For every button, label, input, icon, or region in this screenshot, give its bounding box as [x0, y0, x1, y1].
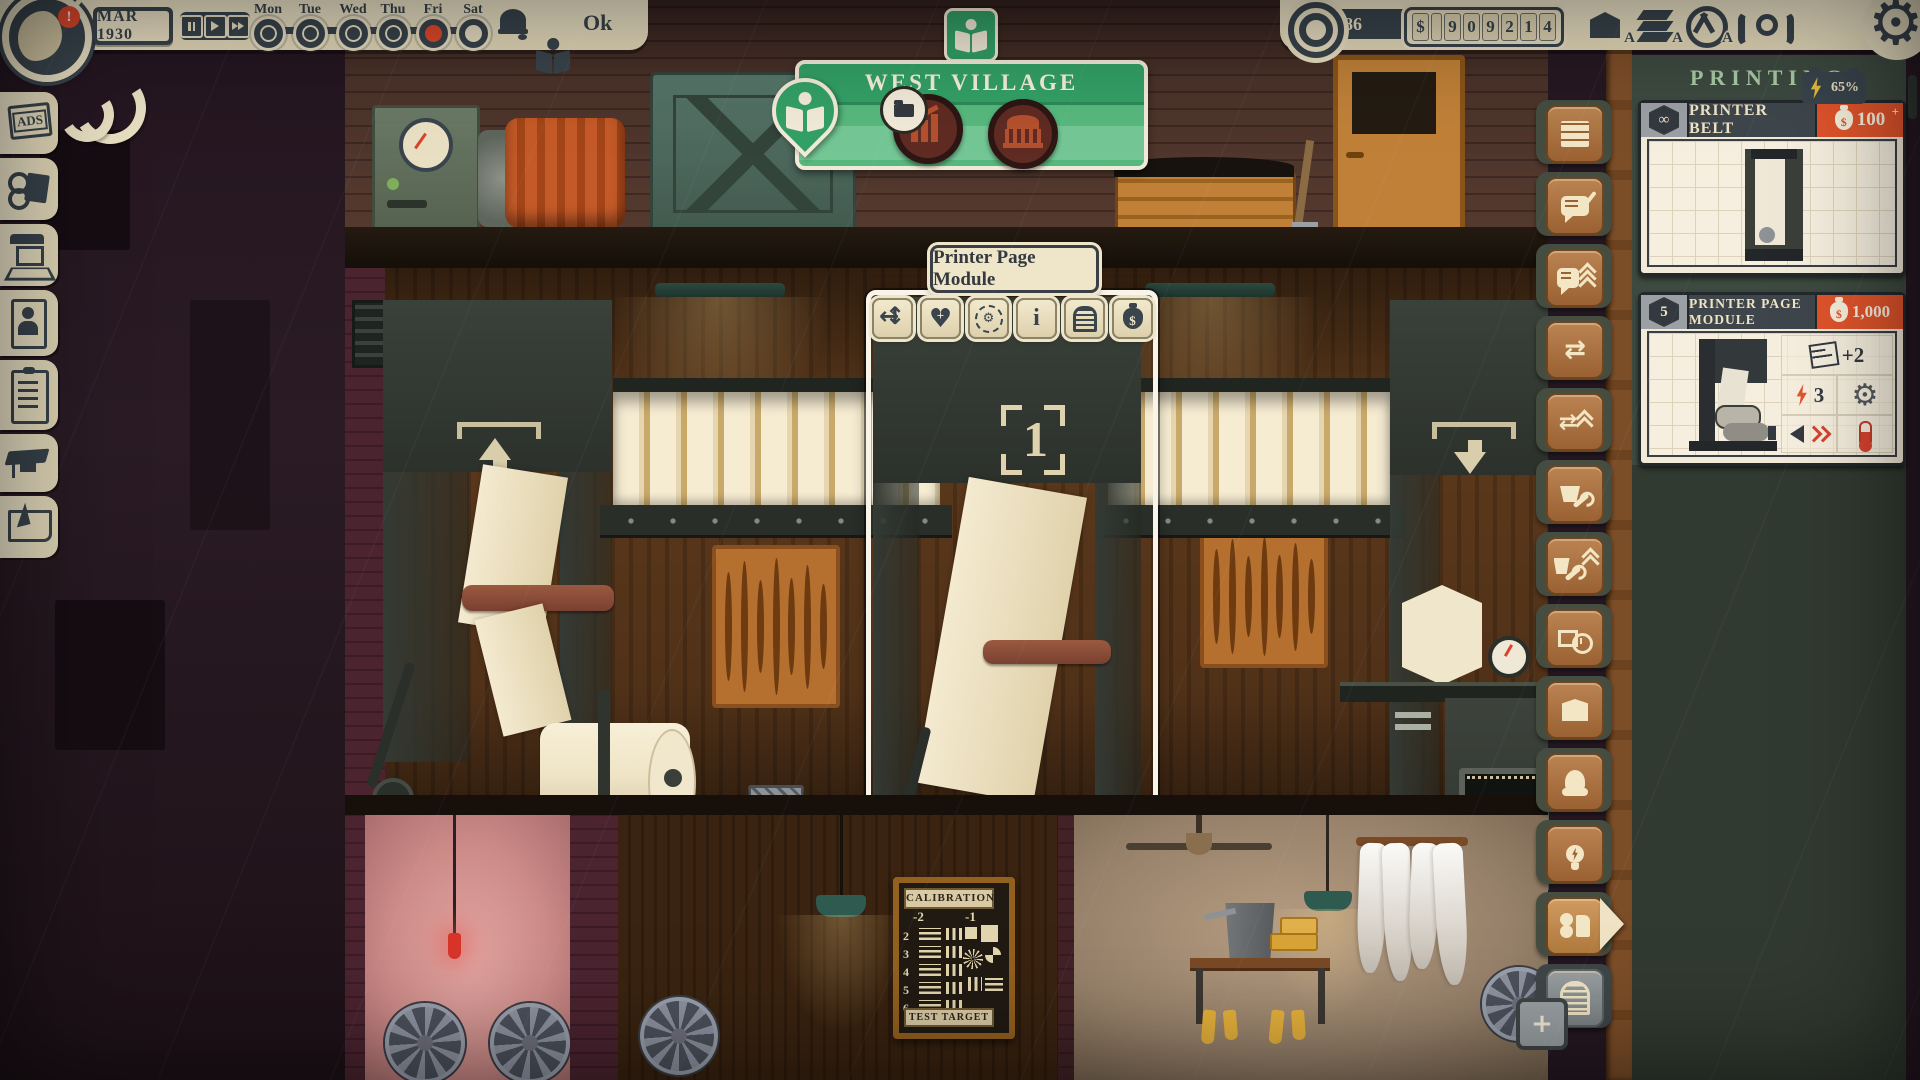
district-marker[interactable] [944, 8, 998, 62]
capitol-dome [1007, 115, 1039, 129]
scrollbar-thumb[interactable] [1908, 75, 1917, 119]
exterior-window [55, 600, 165, 750]
preview-pillar [1699, 339, 1715, 441]
buy-cost[interactable]: $ 100 + [1815, 103, 1903, 137]
rubber-glove [1268, 1009, 1284, 1044]
toolbar-repair-batch-button[interactable] [1536, 532, 1612, 596]
stat-noise [1781, 415, 1837, 453]
stat-maintenance: ⚙ [1837, 375, 1893, 415]
banner-stripe [799, 126, 1144, 160]
toolbar-write-article-button[interactable] [1536, 172, 1612, 236]
toolbar-page-cycle-button[interactable]: ⇄ [1536, 316, 1612, 380]
day-mon: Mon [248, 3, 288, 53]
day-dot [379, 19, 408, 48]
staff-portrait-icon [22, 307, 34, 319]
calibration-col: -2 [913, 909, 924, 925]
storage-door-icon [1073, 306, 1097, 332]
date-text: MAR 1930 [97, 11, 169, 41]
government-coin-badge[interactable] [988, 99, 1058, 169]
module-number: 1 [1023, 409, 1048, 469]
toolbar-staff-button[interactable] [1536, 748, 1612, 812]
cycle-icon: ⇄ [1546, 321, 1604, 379]
card-title: PRINTER BELT [1689, 103, 1815, 137]
module-number-placard: 1 [1001, 405, 1065, 475]
lamp-cord [1326, 815, 1329, 893]
sidebar-training-button[interactable] [0, 434, 58, 492]
printer-output-head[interactable] [1390, 300, 1548, 475]
floor-slab [345, 795, 1548, 815]
generator-gauge-cabinet[interactable] [372, 105, 480, 233]
shop-card-printer-belt[interactable]: ∞ PRINTER BELT $ 100 + [1638, 100, 1906, 276]
bolt-icon [1808, 77, 1824, 99]
toolbar-power-button[interactable] [1536, 820, 1612, 884]
rubber-glove [1201, 1010, 1216, 1045]
add-room-plus-button[interactable]: + [1516, 998, 1568, 1050]
pause-button[interactable] [180, 15, 203, 38]
news-bell-icon[interactable] [498, 9, 528, 39]
bulb-cord [453, 815, 456, 935]
fan [640, 997, 718, 1075]
info-button[interactable]: i [1016, 298, 1057, 339]
toolbar-build-button[interactable] [1536, 100, 1612, 164]
head-icon [1565, 770, 1585, 794]
target-square [981, 925, 998, 942]
calibration-footer: TEST TARGET [904, 1008, 994, 1027]
sidebar-newsstand-button[interactable] [0, 224, 58, 286]
reader-icon [786, 92, 824, 130]
ceiling-lamp [655, 283, 785, 297]
day-wed: Wed [333, 3, 373, 53]
ceiling-lamp [1145, 283, 1275, 297]
infinity-icon: ∞ [1659, 112, 1670, 129]
target-fan [985, 947, 1001, 963]
pressure-gauge [1488, 636, 1530, 678]
belt-preview-cap [1751, 149, 1797, 159]
bulb-icon [1566, 845, 1584, 863]
calibration-rows: 2 3 4 5 6 [903, 927, 962, 1017]
exterior-window [190, 300, 270, 530]
thermometer-icon [1859, 421, 1872, 447]
press-paper-icon [24, 173, 50, 204]
cabinet-vent-line [1395, 724, 1431, 730]
day-dot [339, 19, 368, 48]
preview-base [1689, 441, 1777, 451]
repair-health-button[interactable]: ♥ + [920, 298, 961, 339]
write-batch-icon [1557, 268, 1579, 288]
kiosk-awning-icon [10, 234, 44, 244]
day-dot [296, 19, 325, 48]
buy-cost[interactable]: $ 1,000 [1815, 295, 1903, 329]
stock-badge: 5 [1641, 295, 1689, 329]
district-banner[interactable]: WEST VILLAGE [795, 60, 1148, 170]
selected-tab-arrow [1600, 898, 1624, 950]
hanging-coat [1432, 842, 1469, 985]
game-screen: 1 ⚙ [0, 0, 1920, 1080]
layers-mode-button[interactable]: A [1638, 8, 1676, 42]
alert-badge[interactable]: ! [58, 6, 80, 28]
up-arrow-sign-frame [457, 422, 541, 439]
map-icon [4, 268, 56, 281]
down-arrow-stem [1468, 440, 1482, 452]
write-icon [1561, 196, 1589, 216]
wall-column [570, 815, 618, 1080]
toolbar-write-batch-button[interactable] [1536, 244, 1612, 308]
rubber-glove [1223, 1009, 1239, 1040]
cabinet-slot [387, 200, 427, 208]
toolbar-printing-button[interactable] [1536, 892, 1612, 956]
card-preview: +2 3 ⚙ [1647, 331, 1897, 457]
visibility-toggle[interactable] [1738, 12, 1794, 38]
money-bag-icon: $ [1830, 302, 1848, 322]
cost-value: 1,000 [1852, 302, 1890, 322]
day-sat: Sat [453, 3, 493, 53]
card-preview [1647, 139, 1897, 267]
indicator-light [387, 178, 399, 190]
calibration-title: CALIBRATION [904, 888, 994, 909]
pendant-lamp [816, 895, 866, 917]
eye-icon [1756, 14, 1778, 36]
cost-plus: + [1892, 104, 1899, 120]
gauge-dial [399, 118, 453, 172]
printing-icon [1560, 913, 1590, 939]
roll-axle [664, 769, 682, 787]
press-roller [983, 640, 1111, 664]
info-icon: i [1033, 305, 1040, 332]
maintain-icon: ⚙ [975, 305, 1003, 333]
folder-badge [880, 86, 928, 134]
speed-controls [180, 12, 250, 40]
day-dot-current [419, 19, 448, 48]
wall-vent [712, 545, 840, 708]
sidebar-ads-button[interactable]: ADS [0, 92, 58, 154]
tooltip-title: Printer Page Module [933, 247, 1096, 291]
day-fri: Fri [413, 3, 453, 53]
belt-preview-frame [1745, 149, 1803, 261]
gauge-needle [1504, 644, 1513, 657]
work-shelf[interactable] [1190, 958, 1330, 971]
build-icon [1561, 121, 1589, 147]
module-preview [1689, 339, 1777, 451]
stock-badge: ∞ [1641, 103, 1689, 137]
paper-coil [505, 118, 625, 228]
down-arrow-icon [1454, 452, 1486, 474]
power-icon [1794, 384, 1810, 406]
shelf-leg [1318, 968, 1325, 1024]
sidebar-tasks-button[interactable] [0, 360, 58, 430]
play-button[interactable] [204, 15, 227, 38]
stock-count: 5 [1660, 304, 1668, 321]
district-name: WEST VILLAGE [799, 64, 1144, 105]
red-darkroom-bulb [448, 933, 461, 959]
sell-moneybag-icon: $ [1123, 308, 1143, 329]
day-dot [459, 19, 488, 48]
card-title: PRINTER PAGE MODULE [1689, 295, 1815, 329]
belt-preview-base [1745, 249, 1803, 261]
sponge [1270, 933, 1318, 951]
chart-bar [931, 114, 938, 142]
reader-icon [955, 19, 987, 51]
ceiling-fan-hub [1186, 833, 1212, 855]
ok-label[interactable]: Ok [583, 10, 612, 36]
folded-paper-stack [1402, 585, 1482, 685]
lamp-cord [840, 815, 843, 897]
globe-land [18, 11, 62, 61]
target-square [965, 927, 977, 939]
fan [385, 1003, 465, 1080]
down-arrow-sign-frame [1432, 422, 1516, 439]
day-dot [254, 19, 283, 48]
house-icon [1590, 12, 1620, 38]
belt-preview-roller [1759, 227, 1775, 243]
capitol-columns [1005, 129, 1041, 143]
calibration-col: -1 [965, 909, 976, 925]
power-meter[interactable]: 65% [1802, 72, 1866, 104]
toolbar-storage-button[interactable] [1536, 676, 1612, 740]
target-starburst [963, 949, 983, 969]
zoning-mode-button[interactable]: A [1588, 10, 1628, 42]
battery-value: 65% [1831, 80, 1859, 96]
move-button[interactable]: ↔ ↕ [872, 298, 913, 339]
printing-shop-panel: PRINTING ∞ PRINTER BELT $ 100 + [1632, 55, 1906, 1080]
date-display: MAR 1930 [93, 7, 173, 45]
wall-vent [1200, 525, 1328, 668]
store-button[interactable] [1064, 298, 1105, 339]
speaker-icon [1790, 425, 1804, 443]
door-knob [1346, 152, 1364, 158]
door-window [1352, 72, 1436, 134]
preview-roller [1723, 423, 1769, 441]
auto-maintain-button[interactable]: ⚙ [968, 298, 1009, 339]
rubber-glove [1291, 1010, 1306, 1041]
target-bars [985, 978, 1003, 991]
toolbar-repair-button[interactable] [1536, 460, 1612, 524]
box-icon [1562, 699, 1588, 721]
money-counter: $ 9 0 9 2 1 4 [1404, 7, 1564, 47]
folder-icon [894, 104, 914, 117]
reputation-value: 86 [1344, 14, 1362, 35]
attic-door[interactable] [1333, 55, 1465, 237]
capitol-base [1003, 143, 1043, 148]
day-tue: Tue [290, 3, 330, 53]
wall-column [1058, 815, 1074, 1080]
ads-label: ADS [12, 109, 48, 132]
stat-heat [1837, 415, 1893, 453]
fan [490, 1003, 570, 1080]
wall-column [345, 815, 365, 1080]
newspaper-icon [1808, 341, 1839, 369]
layers-icon [1636, 32, 1673, 42]
money-bag-icon: $ [1835, 110, 1853, 130]
window-lights [1467, 776, 1541, 779]
supply-room [1074, 815, 1548, 1080]
reader-milestone-icon[interactable] [536, 38, 570, 72]
darkroom [365, 815, 570, 1080]
stat-pages: +2 [1781, 335, 1893, 375]
sidebar-staff-button[interactable] [0, 290, 58, 356]
sell-button[interactable]: $ [1112, 298, 1153, 339]
cabinet-vent-line [1395, 712, 1431, 718]
cycle-batch-icon: ⇄ [1546, 393, 1604, 451]
lamp-glow [776, 915, 906, 1035]
tassel [12, 462, 15, 478]
day-thu: Thu [373, 3, 413, 53]
printer-belt-feeder[interactable] [383, 300, 612, 472]
fast-forward-button[interactable] [227, 15, 250, 38]
cost-value: 100 [1857, 109, 1886, 131]
sidebar-printing-button[interactable] [0, 158, 58, 220]
sidebar-blueprint-button[interactable] [0, 496, 58, 558]
toolbar-page-cycle-batch-button[interactable]: ⇄ [1536, 388, 1612, 452]
target-bars [968, 977, 982, 991]
stat-power: 3 [1781, 375, 1837, 415]
settings-gear-button[interactable]: ⚙ [1868, 0, 1920, 59]
up-arrow-icon [479, 438, 511, 460]
toolbar-decor-button[interactable] [1536, 604, 1612, 668]
repair-bucket-icon [1554, 558, 1570, 574]
clipboard-clip-icon [23, 367, 35, 374]
selection-tooltip: Printer Page Module [930, 245, 1099, 293]
pendant-lamp [1304, 891, 1352, 911]
clock-icon [1572, 633, 1593, 654]
calibration-poster: CALIBRATION -2 -1 2 3 4 5 6 TEST TARGET [893, 877, 1015, 1039]
maintenance-mode-button[interactable]: A [1686, 6, 1726, 42]
reputation-gear-badge[interactable] [1288, 2, 1344, 58]
shop-card-printer-page-module[interactable]: 5 PRINTER PAGE MODULE $ 1,000 [1638, 292, 1906, 466]
sponge [1280, 917, 1318, 935]
